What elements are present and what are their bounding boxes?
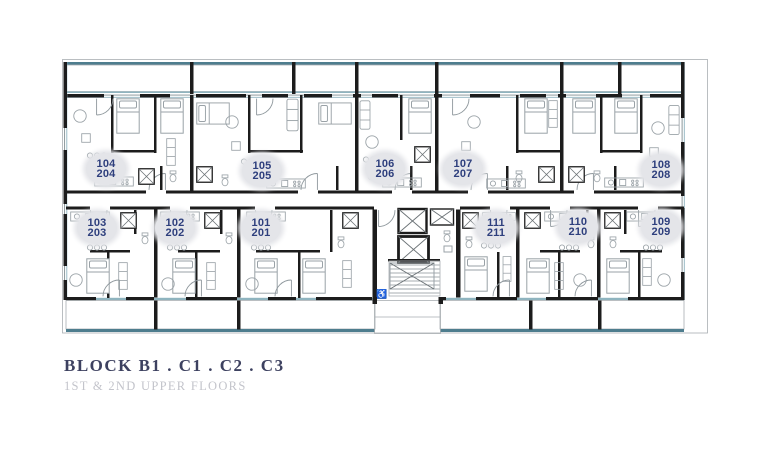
balcony-deck (66, 301, 375, 330)
bed (465, 257, 487, 291)
balcony-rail (440, 329, 684, 332)
balcony-divider (154, 301, 158, 330)
bed (319, 103, 351, 124)
balcony-divider (292, 62, 296, 94)
balcony-deck (66, 65, 684, 92)
bed (117, 99, 139, 133)
wardrobe (503, 257, 511, 282)
shower (121, 213, 136, 228)
toilet (466, 237, 472, 248)
door-arc (257, 99, 273, 115)
balcony-divider (560, 62, 564, 94)
shower (343, 213, 358, 228)
bed (173, 259, 195, 293)
balcony-rail (66, 62, 684, 65)
unit-label-106-206: 106 206 (365, 153, 405, 185)
wardrobe (167, 139, 176, 166)
chairs (643, 245, 662, 250)
bed (615, 99, 637, 133)
unit-number: 204 (97, 169, 116, 180)
door-arc (301, 174, 317, 190)
bed (303, 259, 325, 293)
title-block: BLOCK B1 . C1 . C2 . C3 1ST & 2ND UPPER … (64, 356, 285, 394)
dining-table (70, 274, 82, 286)
chairs (251, 245, 270, 250)
staircase (389, 261, 440, 296)
side-table (82, 134, 91, 143)
unit-label-103-203: 103 203 (77, 212, 117, 244)
bottom-balcony-left (66, 301, 375, 333)
unit-label-102-202: 102 202 (155, 212, 195, 244)
dining-table (468, 116, 480, 128)
top-balcony (66, 62, 684, 94)
sofa (287, 99, 298, 131)
door-arc (575, 280, 591, 296)
unit-label-105-205: 105 205 (242, 155, 282, 187)
toilet (516, 171, 522, 182)
bed (255, 259, 277, 293)
side-table (232, 142, 241, 151)
shower (525, 213, 540, 228)
sofa (360, 101, 370, 129)
unit-label-101-201: 101 201 (241, 212, 281, 244)
balcony-divider (618, 62, 622, 94)
shower (539, 167, 554, 182)
shower (139, 169, 154, 184)
balcony-divider (435, 62, 439, 94)
kitchen-counter (605, 178, 644, 187)
dining-table (658, 274, 670, 286)
unit-label-111-211: 111 211 (476, 212, 516, 244)
floor-plan-page: ♿ 104 204 105 205 106 206 107 207 108 20… (0, 0, 768, 468)
unit-label-104-204: 104 204 (86, 153, 126, 185)
chairs (87, 245, 106, 250)
side-table (462, 142, 471, 151)
toilet (610, 237, 616, 248)
unit-label-109-209: 109 209 (641, 211, 681, 243)
stair-elevator-core: ♿ (376, 209, 454, 299)
unit-label-110-210: 110 210 (558, 211, 598, 243)
sink (444, 246, 452, 252)
accessible-icon: ♿ (376, 288, 387, 299)
toilet (226, 233, 232, 244)
unit-number: 206 (376, 169, 395, 180)
unit-label-107-207: 107 207 (443, 153, 483, 185)
balcony-rail (66, 329, 375, 332)
wardrobe (343, 261, 352, 288)
wardrobe (207, 263, 216, 290)
unit-number: 201 (252, 228, 271, 239)
shower (605, 213, 620, 228)
toilet (594, 171, 600, 182)
door-arc (493, 280, 509, 296)
entrance-walkway (373, 297, 444, 334)
door-arc (453, 99, 469, 115)
unit-number: 211 (487, 228, 505, 239)
unit-number: 210 (569, 227, 588, 238)
chairs (167, 245, 186, 250)
balcony-divider (598, 301, 602, 330)
bed (607, 259, 629, 293)
shower (569, 167, 584, 182)
shower (197, 167, 212, 182)
dining-table (652, 122, 664, 134)
door-arc (97, 99, 113, 115)
floors-subtitle: 1ST & 2ND UPPER FLOORS (64, 379, 285, 394)
bed (161, 99, 183, 133)
bottom-balcony-right (440, 301, 684, 333)
dining-table (366, 136, 378, 148)
bed (87, 259, 109, 293)
wardrobe (643, 259, 652, 286)
toilet (222, 175, 228, 186)
toilet (170, 171, 176, 182)
chairs (559, 245, 578, 250)
toilet (338, 237, 344, 248)
shower (205, 213, 220, 228)
bed (409, 99, 431, 133)
unit-label-108-208: 108 208 (641, 154, 681, 186)
bed (525, 99, 547, 133)
balcony-divider (190, 62, 194, 94)
unit-number: 205 (253, 171, 272, 182)
toilet (444, 231, 450, 242)
shower (415, 147, 430, 162)
toilet (142, 233, 148, 244)
balcony-divider (237, 301, 241, 330)
block-title: BLOCK B1 . C1 . C2 . C3 (64, 356, 285, 376)
sofa (669, 105, 679, 134)
bed (527, 259, 549, 293)
unit-number: 202 (166, 228, 185, 239)
unit-number: 203 (88, 228, 107, 239)
door-arc (379, 210, 395, 226)
wardrobe (549, 101, 558, 128)
balcony-divider (529, 301, 533, 330)
bed (197, 103, 229, 124)
wardrobe (119, 263, 128, 290)
dining-table (74, 110, 86, 122)
bed (573, 99, 595, 133)
balcony-deck (440, 301, 684, 330)
unit-number: 207 (454, 169, 473, 180)
unit-number: 208 (652, 170, 671, 181)
balcony-divider (355, 62, 359, 94)
unit-number: 209 (652, 227, 671, 238)
